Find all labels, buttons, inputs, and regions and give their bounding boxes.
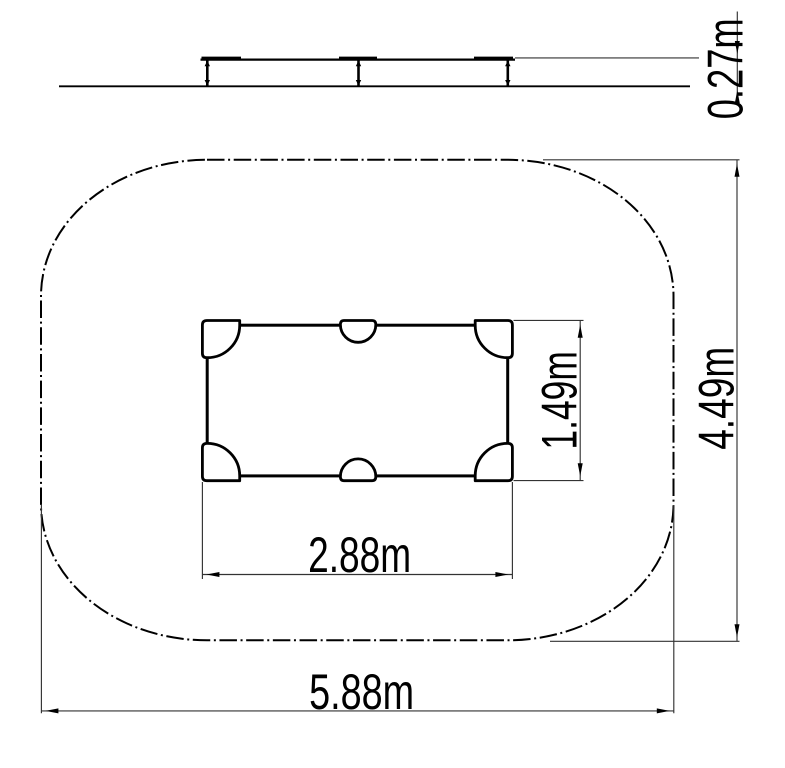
svg-text:1.49m: 1.49m <box>531 351 588 450</box>
svg-text:5.88m: 5.88m <box>309 663 414 720</box>
svg-text:4.49m: 4.49m <box>688 347 745 450</box>
svg-text:2.88m: 2.88m <box>308 526 411 583</box>
svg-text:0.27m: 0.27m <box>697 18 754 119</box>
